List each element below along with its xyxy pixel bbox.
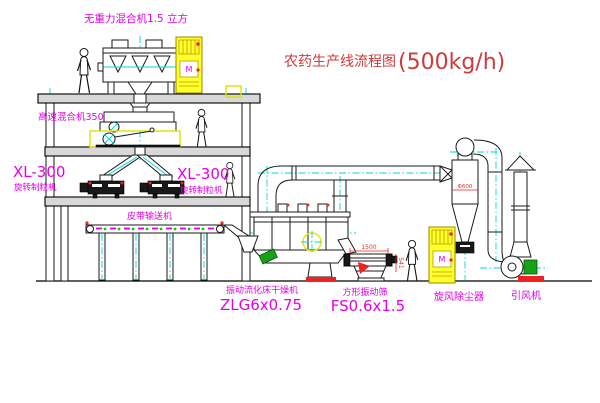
high-speed-mixer-label: 高速混合机350 [38, 111, 104, 123]
person-figure [78, 49, 91, 94]
dryer-model-label: ZLG6x0.75 [220, 296, 302, 314]
exhaust-stack [505, 156, 536, 257]
granulator-right-name: 旋转制粒机 [180, 185, 223, 196]
granulator-right-model: XL-300 [177, 165, 229, 183]
belt-conveyor-label: 皮带输送机 [127, 210, 172, 222]
dryer-name-label: 振动流化床干燥机 [226, 284, 298, 296]
person-figure [406, 240, 418, 280]
granulator-left-name: 旋转制粒机 [14, 182, 57, 193]
granulator-left [80, 175, 124, 198]
cyclone-label: 旋风除尘器 [434, 290, 484, 303]
cabinet-panel-symbol: M [439, 255, 446, 264]
induced-draft-fan [501, 256, 544, 281]
cyclone-diameter-dim: Φ600 [458, 184, 473, 190]
process-flow-diagram: M [0, 0, 600, 403]
diagram-capacity: (500kg/h) [398, 50, 505, 75]
cyclone-separator [452, 138, 478, 253]
control-cabinet-bottom: M [429, 227, 455, 283]
granulator-left-model: XL-300 [13, 163, 65, 181]
control-cabinet-top: M [176, 37, 202, 93]
rain-cap [507, 156, 534, 170]
gravity-mixer-label: 无重力混合机1.5 立方 [84, 12, 188, 25]
screen-length-dim: 1500 [361, 244, 376, 251]
screen-model-label: FS0.6x1.5 [331, 297, 405, 315]
screen-height-dim: 541 [397, 257, 404, 269]
person-figure [196, 109, 207, 147]
belt-conveyor [85, 221, 252, 280]
cabinet-panel-symbol: M [186, 65, 193, 74]
fan-base [518, 276, 544, 281]
diagram-canvas: M [0, 0, 600, 403]
fluid-bed-dryer [238, 204, 350, 281]
fan-label: 引风机 [511, 289, 541, 302]
diagram-title: 农药生产线流程图 [284, 54, 396, 70]
fan-motor [524, 260, 537, 274]
